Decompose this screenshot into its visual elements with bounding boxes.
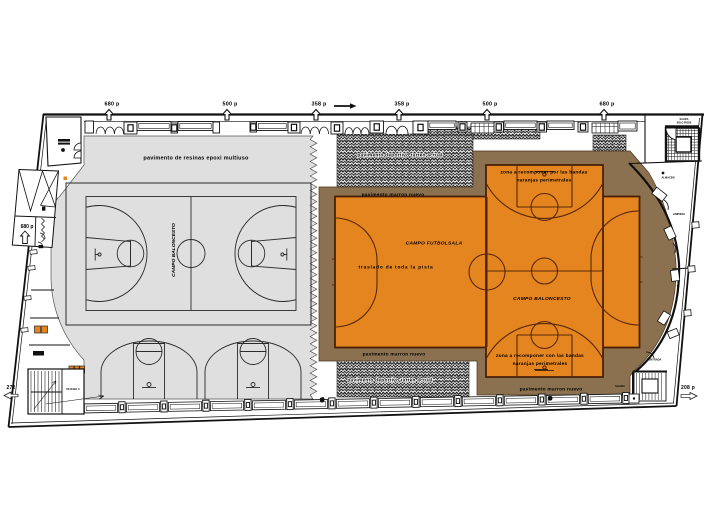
svg-text:500 p: 500 p (222, 102, 237, 108)
svg-text:680 p: 680 p (599, 102, 614, 108)
svg-text:pavimento marron nuevo: pavimento marron nuevo (362, 192, 425, 198)
svg-text:358 p: 358 p (394, 102, 409, 108)
svg-text:pavimento deportivo tarten: pavimento deportivo tarten actual (357, 153, 442, 159)
svg-text:DUCHA 4: DUCHA 4 (66, 387, 80, 391)
svg-text:CAMPO BALONCESTO: CAMPO BALONCESTO (171, 223, 177, 277)
svg-text:CAMPO FUTBOLSALA: CAMPO FUTBOLSALA (406, 241, 463, 247)
svg-text:CAMPO BALONCESTO: CAMPO BALONCESTO (513, 296, 571, 302)
svg-text:pavimento deportivo tarten: pavimento deportivo tarten actual (347, 378, 432, 384)
svg-text:358 p: 358 p (311, 102, 326, 108)
svg-text:pavimento de resinas epoxi: pavimento de resinas epoxi multiuso (143, 156, 249, 162)
svg-text:208 p: 208 p (681, 385, 695, 391)
svg-text:zona a recomponer por las: zona a recomponer por las bandas (500, 170, 587, 176)
svg-text:272: 272 (6, 385, 15, 391)
svg-text:traslado de toda la pista: traslado de toda la pista (359, 265, 434, 271)
svg-text:ALMACEN: ALMACEN (662, 176, 675, 180)
svg-text:SOLO PISOS: SOLO PISOS (677, 121, 692, 124)
svg-text:pavimento marron nuevo: pavimento marron nuevo (520, 387, 583, 393)
svg-text:zona a recomponer con las: zona a recomponer con las bandas (496, 353, 584, 359)
svg-text:naranjas perimetrales: naranjas perimetrales (513, 361, 568, 367)
svg-text:680 p: 680 p (104, 102, 119, 108)
svg-text:LIMPIEZA: LIMPIEZA (673, 212, 685, 216)
svg-text:500 p: 500 p (482, 102, 497, 108)
svg-text:ENTRADA: ENTRADA (649, 358, 662, 362)
svg-text:pavimento marron nuevo: pavimento marron nuevo (363, 352, 426, 358)
svg-text:SALIDA: SALIDA (615, 384, 625, 388)
svg-text:naranjas perimetrales: naranjas perimetrales (517, 178, 572, 184)
svg-text:680 p: 680 p (21, 224, 34, 230)
